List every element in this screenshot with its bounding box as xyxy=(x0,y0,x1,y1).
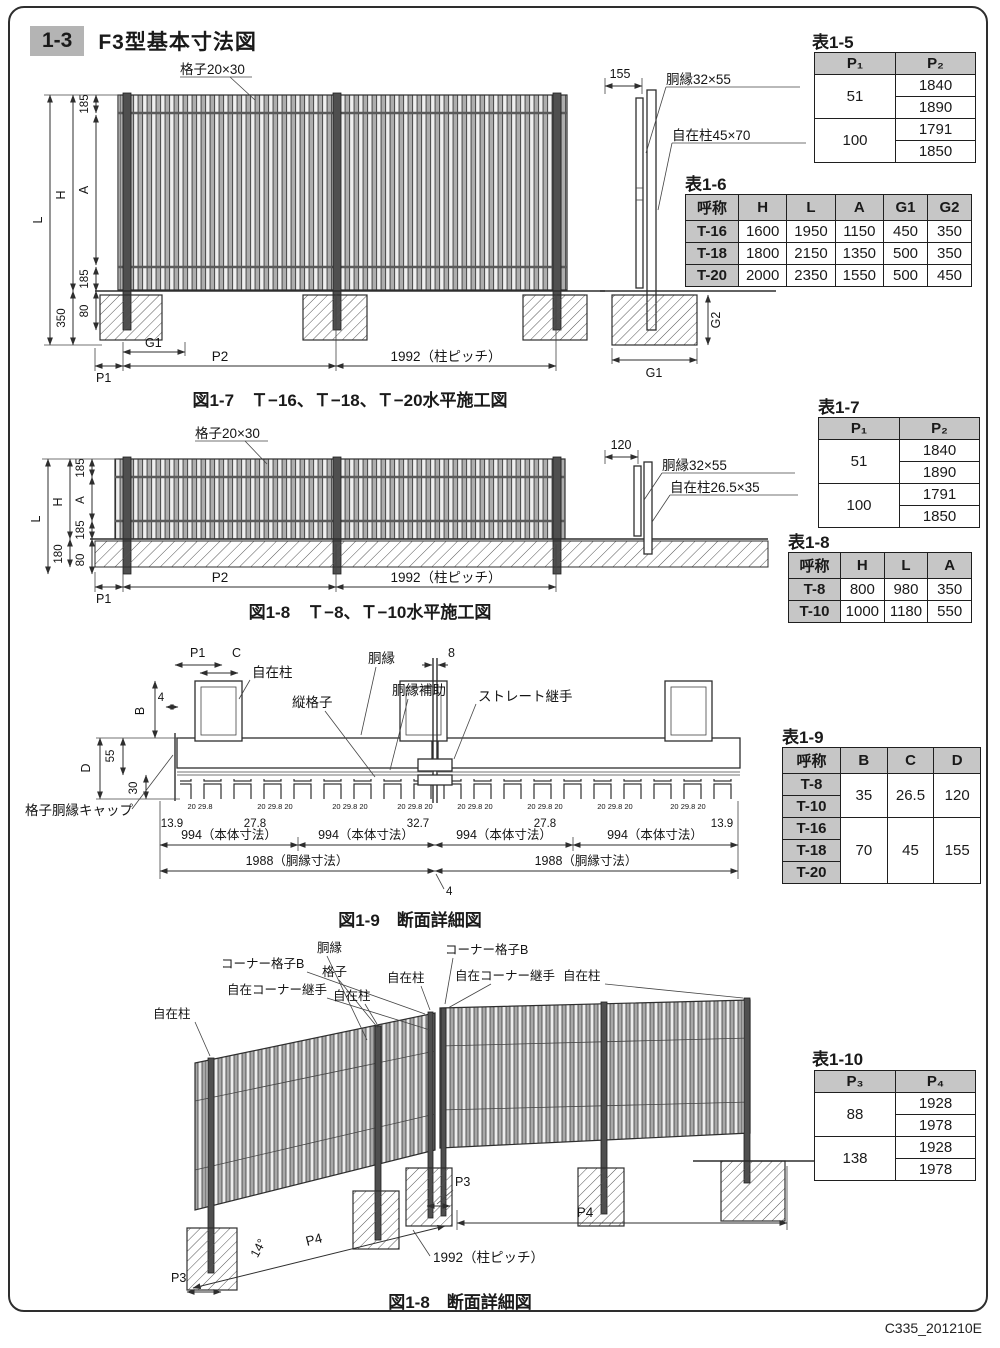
table-cell: 1978 xyxy=(896,1115,976,1137)
table-cell: T-16 xyxy=(686,221,739,243)
fig19-caption: 図1-9 断面詳細図 xyxy=(240,906,580,931)
column-header: C xyxy=(887,748,934,774)
dim-994: 994（本体寸法） xyxy=(318,828,414,842)
post-label: 自在柱 xyxy=(387,970,425,985)
table-cell: 51 xyxy=(819,440,900,484)
mini-dim: 20 29.8 20 xyxy=(670,802,705,811)
column-header: L xyxy=(787,195,835,221)
page-title: F3型基本寸法図 xyxy=(98,26,257,56)
table-cell: 500 xyxy=(884,243,928,265)
column-header: A xyxy=(928,553,972,579)
dim-pitch: 1992（柱ピッチ） xyxy=(390,570,501,585)
column-header: P₁ xyxy=(815,53,896,75)
column-header: A xyxy=(835,195,883,221)
dim-8: 8 xyxy=(448,646,455,660)
dim-gap-4: 4 xyxy=(446,886,453,898)
table-cell: 35 xyxy=(841,774,888,818)
dim-D: D xyxy=(79,763,93,772)
dim-H: H xyxy=(51,497,65,506)
railaux-label: 胴縁補助 xyxy=(392,683,446,698)
dim-L: L xyxy=(31,216,45,223)
dim-185-top: 185 xyxy=(75,458,87,477)
lattice-size-label: 格子20×30 xyxy=(195,426,260,441)
dim-P3: P3 xyxy=(171,1271,186,1285)
dim-P1: P1 xyxy=(96,592,111,606)
side-rail-label: 胴縁32×55 xyxy=(666,72,731,87)
column-header: P₃ xyxy=(815,1071,896,1093)
table-cell: 138 xyxy=(815,1137,896,1181)
table-cell: 1840 xyxy=(896,75,976,97)
fig18-lattice-label: 格子20×30 xyxy=(195,426,268,464)
dim-180: 180 xyxy=(53,544,65,563)
page-header: 1-3 F3型基本寸法図 xyxy=(30,26,257,56)
dim-185-bottom: 185 xyxy=(79,269,91,288)
table-cell: 155 xyxy=(934,818,981,884)
mini-dim: 20 29.8 20 xyxy=(397,802,432,811)
dim-1988: 1988（胴縁寸法） xyxy=(535,853,638,868)
table-cell: 51 xyxy=(815,75,896,119)
side-post-label: 自在柱26.5×35 xyxy=(670,480,760,495)
dim-1988: 1988（胴縁寸法） xyxy=(246,853,349,868)
table-cell: T-20 xyxy=(686,265,739,287)
mini-dim: 20 29.8 20 xyxy=(597,802,632,811)
table-cell: T-10 xyxy=(783,796,841,818)
table-cell: 1791 xyxy=(896,119,976,141)
fig19-chain-dims: 20 29.8 20 29.8 20 20 29.8 20 20 29.8 20… xyxy=(160,801,738,898)
table-cell: 350 xyxy=(928,221,972,243)
table-cell: 1890 xyxy=(896,97,976,119)
lattice-size-label: 格子20×30 xyxy=(180,62,245,77)
dim-P4: P4 xyxy=(304,1230,324,1249)
dim-pitch: 1992（柱ピッチ） xyxy=(433,1250,544,1265)
side-post-label: 自在柱45×70 xyxy=(672,128,750,143)
mini-dim: 20 29.8 20 xyxy=(332,802,367,811)
fig17-lattice-label: 格子20×30 xyxy=(180,62,255,100)
corner-lattice-label: コーナー格子B xyxy=(445,942,528,957)
dim-P2: P2 xyxy=(212,570,229,585)
column-header: 呼称 xyxy=(783,748,841,774)
table-cell: 1600 xyxy=(739,221,787,243)
table-cell: T-10 xyxy=(789,601,841,623)
table-cell: 1791 xyxy=(900,484,980,506)
column-header: 呼称 xyxy=(789,553,841,579)
table-row: T-16 1600 1950 1150 450 350 xyxy=(686,221,972,243)
fig18b-caption: 図1-8 断面詳細図 xyxy=(290,1288,630,1313)
table-1-6-title: 表1-6 xyxy=(685,170,727,195)
dim-C: C xyxy=(232,646,241,660)
table-1-7: P₁ P₂ 51 1840 1890 100 1791 1850 xyxy=(818,417,980,528)
dim-4: 4 xyxy=(158,692,165,704)
dim-994: 994（本体寸法） xyxy=(456,828,552,842)
dim-pitch: 1992（柱ピッチ） xyxy=(390,349,501,364)
dim-G2: G2 xyxy=(709,312,723,329)
dim-L: L xyxy=(29,515,43,522)
table-cell: 70 xyxy=(841,818,888,884)
table-row: T-20 2000 2350 1550 500 450 xyxy=(686,265,972,287)
table-1-10: P₃ P₄ 88 1928 1978 138 1928 1978 xyxy=(814,1070,976,1181)
corner-joint-label: 自在コーナー継手 xyxy=(455,968,555,983)
table-cell: 1150 xyxy=(835,221,883,243)
fig18-fence xyxy=(90,457,768,574)
cap-label: 格子胴縁キャップ xyxy=(25,803,133,818)
column-header: H xyxy=(841,553,885,579)
joint-label: ストレート継手 xyxy=(478,689,573,704)
table-row: 51 1840 xyxy=(819,440,980,462)
rail-label: 胴縁 xyxy=(368,651,395,666)
column-header: P₁ xyxy=(819,418,900,440)
lattice-label: 格子 xyxy=(322,964,347,979)
table-cell: 2150 xyxy=(787,243,835,265)
column-header: P₄ xyxy=(896,1071,976,1093)
post-label: 自在柱 xyxy=(252,665,293,680)
dim-55: 55 xyxy=(105,750,117,763)
fig18-side-view: 120 胴縁32×55 自在柱26.5×35 xyxy=(605,438,798,554)
table-row: 51 1840 xyxy=(815,75,976,97)
column-header: L xyxy=(884,553,928,579)
fig18-caption: 図1-8 Ｔ−8、Ｔ−10水平施工図 xyxy=(160,598,580,623)
dim-30: 30 xyxy=(128,782,140,795)
fig18b-panels xyxy=(187,998,827,1290)
table-cell: T-8 xyxy=(783,774,841,796)
table-1-6: 呼称 H L A G1 G2 T-16 1600 1950 1150 450 3… xyxy=(685,194,972,287)
mini-dim: 20 29.8 20 xyxy=(257,802,292,811)
mini-dim: 20 29.8 20 xyxy=(457,802,492,811)
dim-P4: P4 xyxy=(577,1205,594,1220)
column-header: H xyxy=(739,195,787,221)
corner-lattice-label: コーナー格子B xyxy=(221,956,304,971)
table-cell: 350 xyxy=(928,579,972,601)
table-cell: 550 xyxy=(928,601,972,623)
table-row: 138 1928 xyxy=(815,1137,976,1159)
table-cell: 1928 xyxy=(896,1093,976,1115)
rail-label: 胴縁 xyxy=(317,940,342,955)
post-label: 自在柱 xyxy=(333,988,371,1003)
table-cell: 350 xyxy=(928,243,972,265)
table-cell: 100 xyxy=(815,119,896,163)
table-1-10-title: 表1-10 xyxy=(812,1045,863,1070)
dim-155: 155 xyxy=(610,67,631,81)
column-header: P₂ xyxy=(896,53,976,75)
table-cell: T-8 xyxy=(789,579,841,601)
table-row: 100 1791 xyxy=(819,484,980,506)
table-cell: 1928 xyxy=(896,1137,976,1159)
dim-P1: P1 xyxy=(190,646,205,660)
table-cell: 800 xyxy=(841,579,885,601)
post-label: 自在柱 xyxy=(563,968,601,983)
table-cell: 1850 xyxy=(896,141,976,163)
table-cell: 980 xyxy=(884,579,928,601)
column-header: D xyxy=(934,748,981,774)
table-1-5: P₁ P₂ 51 1840 1890 100 1791 1850 xyxy=(814,52,976,163)
mini-dim: 20 29.8 20 xyxy=(527,802,562,811)
table-cell: 120 xyxy=(934,774,981,818)
table-1-5-title: 表1-5 xyxy=(812,28,854,53)
vlattice-label: 縦格子 xyxy=(292,695,333,710)
dim-120: 120 xyxy=(611,438,632,452)
dim-13-9: 13.9 xyxy=(161,818,183,830)
table-1-8-title: 表1-8 xyxy=(788,528,830,553)
table-cell: 100 xyxy=(819,484,900,528)
table-cell: 45 xyxy=(887,818,934,884)
column-header: 呼称 xyxy=(686,195,739,221)
mini-dim: 20 29.8 xyxy=(187,802,212,811)
column-header: P₂ xyxy=(900,418,980,440)
corner-joint-label: 自在コーナー継手 xyxy=(227,982,327,997)
dim-185-bottom: 185 xyxy=(75,520,87,539)
table-cell: 1840 xyxy=(900,440,980,462)
table-row: T-16 70 45 155 xyxy=(783,818,981,840)
dim-P2: P2 xyxy=(212,349,229,364)
fig18b-drawing: 自在柱 コーナー格子B 自在コーナー継手 胴縁 格子 自在柱 自在柱 コーナー格… xyxy=(25,938,840,1300)
table-row: T-18 1800 2150 1350 500 350 xyxy=(686,243,972,265)
side-rail-label: 胴縁32×55 xyxy=(662,458,727,473)
table-cell: 88 xyxy=(815,1093,896,1137)
dim-80: 80 xyxy=(75,554,87,567)
dim-350: 350 xyxy=(56,308,68,327)
table-cell: 1550 xyxy=(835,265,883,287)
fig18-drawing: 格子20×30 L H A 185 185 180 80 P1 P2 1992（… xyxy=(20,424,800,610)
dim-185-top: 185 xyxy=(79,94,91,113)
table-cell: 2350 xyxy=(787,265,835,287)
dim-G1: G1 xyxy=(145,336,162,350)
section-number: 1-3 xyxy=(30,26,84,56)
dim-G1-side: G1 xyxy=(646,366,663,380)
post-label: 自在柱 xyxy=(153,1006,191,1021)
dim-P1: P1 xyxy=(96,371,111,385)
fig19-drawing: P1 C 4 B D 55 30 自在柱 胴縁 縦格子 胴縁補助 8 ストレート… xyxy=(20,643,780,921)
dim-B: B xyxy=(133,707,147,715)
column-header: B xyxy=(841,748,888,774)
dim-80: 80 xyxy=(79,305,91,318)
table-cell: 1350 xyxy=(835,243,883,265)
table-1-7-title: 表1-7 xyxy=(818,393,860,418)
table-1-9-title: 表1-9 xyxy=(782,723,824,748)
dim-P3: P3 xyxy=(455,1175,470,1189)
table-1-8: 呼称 H L A T-8 800 980 350 T-10 1000 1180 … xyxy=(788,552,972,623)
document-code: C335_201210E xyxy=(770,1320,982,1336)
column-header: G2 xyxy=(928,195,972,221)
table-cell: 1800 xyxy=(739,243,787,265)
column-header: G1 xyxy=(884,195,928,221)
fig17-caption: 図1-7 Ｔ−16、Ｔ−18、Ｔ−20水平施工図 xyxy=(140,386,560,411)
table-cell: 500 xyxy=(884,265,928,287)
table-cell: 2000 xyxy=(739,265,787,287)
table-cell: 450 xyxy=(928,265,972,287)
dim-A: A xyxy=(75,496,87,504)
table-row: 88 1928 xyxy=(815,1093,976,1115)
dim-13-9: 13.9 xyxy=(711,818,733,830)
dim-994: 994（本体寸法） xyxy=(181,828,277,842)
table-cell: 1850 xyxy=(900,506,980,528)
table-cell: 1000 xyxy=(841,601,885,623)
table-1-9: 呼称 B C D T-8 35 26.5 120 T-10 T-16 70 45… xyxy=(782,747,981,884)
table-row: T-8 800 980 350 xyxy=(789,579,972,601)
table-row: 100 1791 xyxy=(815,119,976,141)
table-cell: 450 xyxy=(884,221,928,243)
fig17-fence xyxy=(95,93,605,340)
table-cell: T-16 xyxy=(783,818,841,840)
dim-A: A xyxy=(77,185,91,194)
dim-994: 994（本体寸法） xyxy=(607,828,703,842)
table-cell: 1890 xyxy=(900,462,980,484)
table-cell: 1950 xyxy=(787,221,835,243)
table-cell: T-20 xyxy=(783,862,841,884)
dim-angle-14: 14° xyxy=(248,1236,269,1259)
table-row: T-8 35 26.5 120 xyxy=(783,774,981,796)
dim-H: H xyxy=(54,190,68,199)
table-cell: 26.5 xyxy=(887,774,934,818)
table-cell: T-18 xyxy=(686,243,739,265)
table-cell: T-18 xyxy=(783,840,841,862)
table-cell: 1978 xyxy=(896,1159,976,1181)
table-cell: 1180 xyxy=(884,601,928,623)
table-row: T-10 1000 1180 550 xyxy=(789,601,972,623)
